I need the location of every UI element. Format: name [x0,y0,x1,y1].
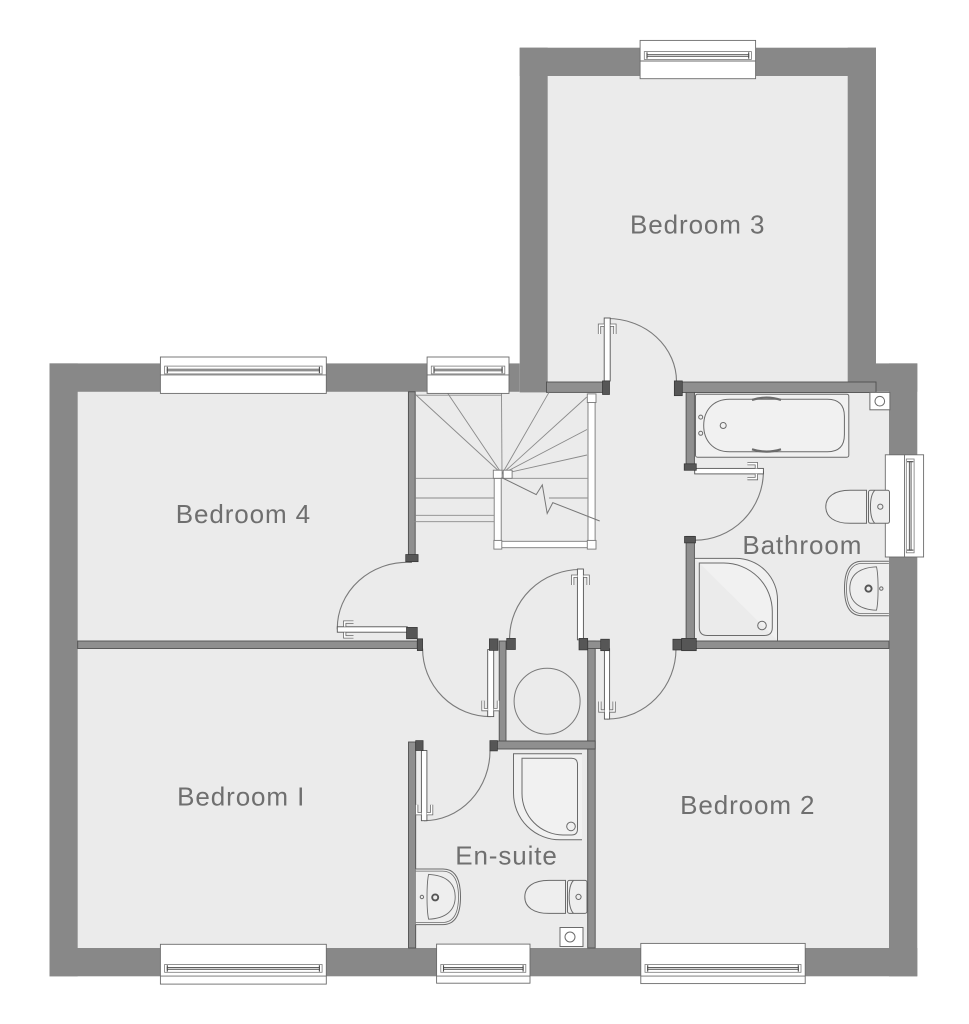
svg-text:Bedroom I: Bedroom I [177,782,305,812]
svg-text:En-suite: En-suite [455,840,558,870]
svg-text:Bedroom 3: Bedroom 3 [630,209,765,239]
svg-text:Bedroom 2: Bedroom 2 [680,790,815,820]
svg-text:Bedroom 4: Bedroom 4 [176,499,311,529]
svg-text:Bathroom: Bathroom [742,530,862,560]
